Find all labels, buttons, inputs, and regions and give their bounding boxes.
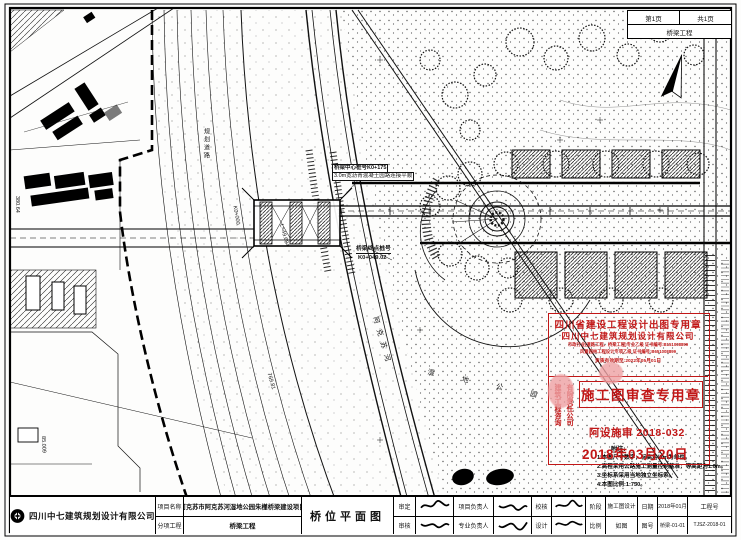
company-logo-icon bbox=[10, 504, 25, 528]
bridge-center-note-label: 3.0m宽沥青混凝土园路连接平顺 bbox=[332, 172, 414, 181]
page-total: 共1页 bbox=[680, 11, 732, 24]
review-signature bbox=[415, 516, 453, 535]
page-number: 第1页 bbox=[628, 11, 680, 24]
approve-signature bbox=[415, 497, 453, 516]
review-seal-title: 施工图审查专用章 bbox=[579, 381, 703, 408]
check-label-cell: 校核 bbox=[531, 497, 551, 516]
lead-signature bbox=[493, 516, 531, 535]
design-signature bbox=[551, 516, 585, 535]
review-number: 阿设施审 2018-032 bbox=[589, 425, 685, 440]
design-seal-title: 四川省建设工程设计出图专用章 bbox=[550, 317, 706, 331]
stage-value-cell: 施工图设计 bbox=[605, 497, 637, 516]
stage-label-cell: 阶段 bbox=[585, 497, 605, 516]
alignment-label-4: 380.64 bbox=[13, 196, 20, 213]
title-block: 四川中七建筑规划设计有限公司 项目名称 阿克苏市阿克苏河湿地公园朱槿桥梁建设项目… bbox=[10, 495, 731, 534]
projno-value-cell: TJSZ-2018-01 bbox=[687, 516, 731, 535]
figno-label-cell: 图号 bbox=[637, 516, 657, 535]
pm-label-cell: 项目负责人 bbox=[453, 497, 493, 516]
approve-label-cell: 审定 bbox=[393, 497, 415, 516]
project-label-cell: 项目名称 bbox=[155, 497, 183, 516]
date-value-cell: 2018年01月 bbox=[657, 497, 687, 516]
redaction-blob-2 bbox=[548, 374, 574, 408]
design-seal-company: 四川中七建筑规划设计有限公司 bbox=[550, 330, 706, 342]
pm-signature bbox=[493, 497, 531, 516]
subitem-label-cell: 分项工程 bbox=[155, 516, 183, 535]
date-label-cell: 日期 bbox=[637, 497, 657, 516]
note-line-4: 4.本图比例:1:750。 bbox=[597, 481, 726, 490]
project-name-cell: 阿克苏市阿克苏河湿地公园朱槿桥梁建设项目 bbox=[183, 497, 301, 516]
figno-value-cell: 桥梁-01-01 bbox=[657, 516, 687, 535]
review-label-cell: 审核 bbox=[393, 516, 415, 535]
company-name: 四川中七建筑规划设计有限公司 bbox=[29, 510, 155, 522]
design-seal-valid: 资质有效期至:2022年05月01日 bbox=[551, 357, 705, 364]
scale-value-cell: 如图 bbox=[605, 516, 637, 535]
sheet-index-table: 第1页 共1页 桥梁工程 bbox=[627, 10, 732, 39]
alignment-label-5: 85.009 bbox=[39, 436, 46, 453]
design-seal-cert-2: 风景园林工程设计专项乙级 证书编号:B651008899 bbox=[551, 349, 705, 355]
review-date: 2018年03月20日 bbox=[582, 443, 688, 463]
bridge-end-station-label: K0+049.02 bbox=[358, 255, 387, 262]
design-label-cell: 设计 bbox=[531, 516, 551, 535]
subitem-name-cell: 桥梁工程 bbox=[183, 516, 301, 535]
lead-label-cell: 专业负责人 bbox=[453, 516, 493, 535]
discipline-name: 桥梁工程 bbox=[628, 25, 732, 38]
redaction-blob-1 bbox=[599, 362, 623, 384]
design-seal-cert-1: 市政行业(道路工程、桥梁工程)专业乙级 证书编号:B151008899 bbox=[551, 342, 705, 348]
bridge-end-label: 桥梁终点桩号 bbox=[356, 246, 391, 254]
design-firm-cell: 四川中七建筑规划设计有限公司 bbox=[10, 497, 155, 534]
note-line-3: 3.坐标系采用当地独立坐标系。 bbox=[597, 472, 726, 481]
projno-label-cell: 工程号 bbox=[687, 497, 731, 516]
drawing-title-cell: 桥位平面图 bbox=[301, 497, 393, 534]
road-name-label: 规划道路 bbox=[201, 128, 209, 160]
scale-label-cell: 比例 bbox=[585, 516, 605, 535]
drawing-sheet: 第1页 共1页 桥梁工程 桥梁中心桩号K0+175 3.0m宽沥青混凝土园路连接… bbox=[0, 0, 741, 540]
check-signature bbox=[551, 497, 585, 516]
seal-divider bbox=[548, 376, 708, 377]
